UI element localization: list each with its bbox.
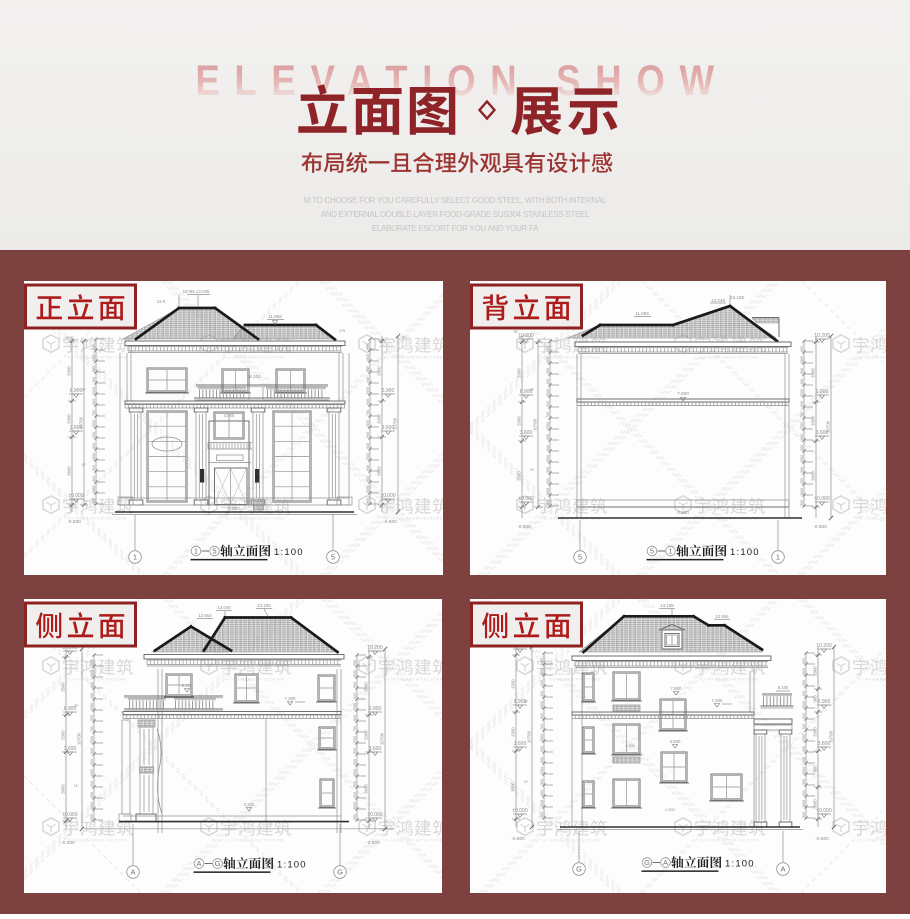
- svg-text:YU HONG ARCHITECTURE: YU HONG ARCHITECTURE: [541, 678, 601, 682]
- svg-text:12.5: 12.5: [157, 299, 166, 304]
- svg-text:G: G: [215, 859, 221, 868]
- svg-text:900: 900: [92, 498, 96, 504]
- svg-text:900: 900: [353, 781, 357, 787]
- svg-text:1500: 1500: [511, 679, 516, 689]
- svg-text:3300: 3300: [67, 414, 72, 424]
- svg-text:1500: 1500: [800, 455, 804, 463]
- svg-text:900: 900: [540, 680, 544, 686]
- svg-text:600: 600: [366, 476, 370, 482]
- svg-text:15?85 13.045: 15?85 13.045: [183, 289, 210, 294]
- svg-text:±0.000: ±0.000: [814, 496, 829, 502]
- svg-text:1:100: 1:100: [725, 859, 755, 870]
- svg-text:YU HONG ARCHITECTURE: YU HONG ARCHITECTURE: [383, 839, 443, 843]
- svg-text:700: 700: [802, 724, 806, 730]
- svg-text:900: 900: [90, 682, 94, 688]
- svg-text:-0.500: -0.500: [815, 836, 829, 842]
- svg-text:1500: 1500: [90, 769, 94, 777]
- svg-text:3300: 3300: [67, 366, 72, 376]
- svg-text:1800: 1800: [800, 488, 804, 496]
- svg-text:900: 900: [802, 680, 806, 686]
- svg-text:10700: 10700: [77, 732, 82, 745]
- svg-text:2550: 2550: [546, 422, 550, 430]
- svg-text:10.200: 10.200: [367, 645, 383, 651]
- svg-text:900: 900: [90, 781, 94, 787]
- svg-text:2550: 2550: [540, 734, 544, 742]
- svg-text:1:100: 1:100: [730, 547, 760, 558]
- svg-text:7.800: 7.800: [671, 686, 683, 691]
- svg-text:1F: 1F: [524, 780, 529, 784]
- svg-text:1:100: 1:100: [277, 860, 307, 871]
- svg-text:3300: 3300: [377, 414, 382, 424]
- svg-text:G: G: [337, 868, 343, 877]
- svg-text:1800: 1800: [813, 666, 818, 676]
- svg-text:600: 600: [802, 658, 806, 664]
- svg-text:3500: 3500: [61, 682, 66, 692]
- svg-text:3.600: 3.600: [520, 430, 533, 436]
- svg-text:900: 900: [90, 748, 94, 754]
- svg-text:-0.500: -0.500: [67, 519, 81, 525]
- svg-text:-0.500: -0.500: [383, 519, 397, 525]
- svg-text:3000: 3000: [92, 387, 96, 395]
- svg-text:900: 900: [353, 814, 357, 820]
- svg-text:RF: RF: [65, 336, 71, 340]
- svg-text:600: 600: [90, 759, 94, 765]
- svg-text:600: 600: [802, 713, 806, 719]
- svg-text:7.200: 7.200: [285, 696, 297, 701]
- svg-text:2F: 2F: [524, 700, 529, 704]
- svg-text:900: 900: [546, 434, 550, 440]
- svg-text:700: 700: [540, 724, 544, 730]
- svg-text:600: 600: [353, 660, 357, 666]
- svg-text:900: 900: [802, 746, 806, 752]
- svg-text:7.800: 7.800: [677, 391, 689, 396]
- svg-text:600: 600: [366, 443, 370, 449]
- svg-text:13.185: 13.185: [660, 603, 674, 608]
- svg-text:600: 600: [353, 715, 357, 721]
- svg-text:AND EXTERNAL DOUBLE-LAYER FOOD: AND EXTERNAL DOUBLE-LAYER FOOD-GRADE SUS…: [321, 210, 590, 219]
- svg-text:11.959: 11.959: [268, 314, 282, 319]
- svg-text:900: 900: [546, 467, 550, 473]
- svg-text:1800: 1800: [546, 356, 550, 364]
- svg-text:400: 400: [366, 377, 370, 383]
- svg-text:400: 400: [546, 379, 550, 385]
- svg-text:1:100: 1:100: [274, 547, 304, 558]
- svg-text:0.300: 0.300: [665, 808, 675, 812]
- svg-text:±0.000: ±0.000: [512, 808, 527, 814]
- svg-text:A: A: [130, 868, 135, 877]
- svg-text:900: 900: [353, 748, 357, 754]
- svg-text:2F: 2F: [82, 388, 87, 392]
- svg-text:600: 600: [800, 478, 804, 484]
- svg-text:±0.000: ±0.000: [62, 812, 77, 818]
- svg-text:900: 900: [92, 432, 96, 438]
- svg-text:900: 900: [366, 465, 370, 471]
- svg-text:600: 600: [540, 713, 544, 719]
- svg-text:600: 600: [800, 346, 804, 352]
- svg-text:3000: 3000: [540, 701, 544, 709]
- svg-text:6.900: 6.900: [382, 388, 395, 394]
- svg-text:YU HONG ARCHITECTURE: YU HONG ARCHITECTURE: [225, 839, 285, 843]
- svg-text:400: 400: [540, 691, 544, 697]
- svg-text:1500: 1500: [802, 767, 806, 775]
- svg-text:ELABORATE ESCORT FOR YOU AND Y: ELABORATE ESCORT FOR YOU AND YOUR FA: [372, 224, 539, 233]
- svg-text:3000: 3000: [90, 703, 94, 711]
- svg-text:YU HONG ARCHITECTURE: YU HONG ARCHITECTURE: [699, 356, 759, 360]
- svg-text:YU HONG ARCHITECTURE: YU HONG ARCHITECTURE: [67, 839, 127, 843]
- svg-text:5: 5: [578, 553, 582, 562]
- svg-text:6.900: 6.900: [70, 388, 83, 394]
- svg-text:4.300: 4.300: [625, 744, 635, 748]
- svg-text:600: 600: [90, 715, 94, 721]
- svg-text:1800: 1800: [540, 668, 544, 676]
- svg-text:600: 600: [353, 759, 357, 765]
- svg-text:±0.000: ±0.000: [518, 496, 533, 502]
- svg-text:600: 600: [546, 478, 550, 484]
- svg-text:700: 700: [546, 412, 550, 418]
- svg-text:900: 900: [540, 779, 544, 785]
- svg-text:2550: 2550: [353, 736, 357, 744]
- svg-text:-0.500: -0.500: [61, 840, 75, 846]
- svg-text:600: 600: [546, 346, 550, 352]
- svg-text:10700: 10700: [533, 418, 538, 431]
- svg-text:900: 900: [366, 432, 370, 438]
- svg-text:700: 700: [353, 726, 357, 732]
- svg-text:2550: 2550: [90, 736, 94, 744]
- svg-text:900: 900: [546, 368, 550, 374]
- svg-text:900: 900: [802, 812, 806, 818]
- svg-text:900: 900: [800, 434, 804, 440]
- svg-text:RF: RF: [513, 330, 519, 334]
- svg-text:3300: 3300: [811, 368, 816, 378]
- svg-text:600: 600: [92, 399, 96, 405]
- svg-text:700: 700: [800, 412, 804, 418]
- svg-text:900: 900: [366, 498, 370, 504]
- svg-text:900: 900: [353, 682, 357, 688]
- svg-text:13.185: 13.185: [730, 295, 744, 300]
- svg-text:900: 900: [366, 366, 370, 372]
- svg-text:3.600: 3.600: [70, 425, 83, 431]
- svg-text:-0.500: -0.500: [813, 524, 827, 530]
- svg-text:900: 900: [813, 765, 818, 773]
- svg-text:600: 600: [802, 790, 806, 796]
- svg-text:3300: 3300: [511, 727, 516, 737]
- svg-text:600: 600: [540, 790, 544, 796]
- svg-text:3.600: 3.600: [382, 425, 395, 431]
- svg-text:600: 600: [353, 792, 357, 798]
- svg-text:2550: 2550: [366, 420, 370, 428]
- svg-text:4.500: 4.500: [224, 413, 235, 418]
- svg-text:YU HONG ARCHITECTURE: YU HONG ARCHITECTURE: [383, 356, 443, 360]
- svg-text:6.900: 6.900: [369, 706, 382, 712]
- svg-text:600: 600: [800, 401, 804, 407]
- svg-text:600: 600: [92, 443, 96, 449]
- svg-text:3.600: 3.600: [816, 430, 829, 436]
- svg-text:900: 900: [92, 465, 96, 471]
- svg-text:900: 900: [800, 500, 804, 506]
- svg-text:0.500: 0.500: [677, 510, 689, 515]
- svg-text:1800: 1800: [802, 800, 806, 808]
- svg-text:1: 1: [776, 553, 780, 562]
- svg-text:1800: 1800: [802, 668, 806, 676]
- svg-text:600: 600: [546, 401, 550, 407]
- svg-text:700: 700: [92, 410, 96, 416]
- svg-text:700: 700: [366, 410, 370, 416]
- svg-text:1800: 1800: [90, 670, 94, 678]
- svg-text:10700: 10700: [380, 732, 385, 745]
- svg-text:1800: 1800: [366, 486, 370, 494]
- svg-text:3.600: 3.600: [369, 746, 382, 752]
- svg-text:3600: 3600: [511, 782, 516, 792]
- svg-text:3500: 3500: [364, 682, 369, 692]
- svg-text:1F: 1F: [74, 784, 79, 788]
- svg-text:1: 1: [194, 547, 198, 556]
- svg-text:900: 900: [800, 368, 804, 374]
- svg-text:400: 400: [800, 379, 804, 385]
- svg-text:3300: 3300: [813, 727, 818, 737]
- svg-text:3300: 3300: [61, 730, 66, 740]
- svg-text:2550: 2550: [800, 422, 804, 430]
- svg-text:3300: 3300: [377, 366, 382, 376]
- svg-text:A: A: [196, 859, 201, 868]
- svg-text:1: 1: [668, 547, 672, 556]
- svg-text:1?5: 1?5: [339, 329, 345, 333]
- svg-text:6.900: 6.900: [816, 389, 829, 395]
- svg-text:1800: 1800: [353, 670, 357, 678]
- svg-text:600: 600: [366, 344, 370, 350]
- svg-text:600: 600: [802, 757, 806, 763]
- svg-text:1800: 1800: [92, 486, 96, 494]
- svg-text:YU HONG ARCHITECTURE: YU HONG ARCHITECTURE: [67, 356, 127, 360]
- svg-text:600: 600: [90, 792, 94, 798]
- svg-text:5: 5: [212, 547, 216, 556]
- svg-text:600: 600: [540, 658, 544, 664]
- svg-text:13.045: 13.045: [217, 605, 231, 610]
- svg-text:G: G: [576, 865, 582, 874]
- svg-text:400: 400: [802, 691, 806, 697]
- svg-text:600: 600: [366, 399, 370, 405]
- svg-text:6.900: 6.900: [818, 699, 831, 705]
- svg-text:1500: 1500: [92, 453, 96, 461]
- svg-text:3000: 3000: [366, 387, 370, 395]
- svg-text:±0.000: ±0.000: [816, 808, 831, 814]
- svg-text:400: 400: [353, 693, 357, 699]
- svg-text:1F: 1F: [82, 463, 87, 467]
- svg-text:600: 600: [546, 445, 550, 451]
- svg-text:1800: 1800: [92, 354, 96, 362]
- svg-text:-0.500: -0.500: [517, 524, 531, 530]
- svg-text:3600: 3600: [67, 466, 72, 476]
- svg-text:3300: 3300: [364, 730, 369, 740]
- svg-text:YU HONG ARCHITECTURE: YU HONG ARCHITECTURE: [541, 839, 601, 843]
- svg-text:1500: 1500: [353, 769, 357, 777]
- svg-text:900: 900: [540, 812, 544, 818]
- svg-text:1800: 1800: [800, 356, 804, 364]
- svg-text:13.185: 13.185: [257, 603, 271, 608]
- svg-text:3.600: 3.600: [818, 741, 831, 747]
- svg-text:600: 600: [540, 757, 544, 763]
- svg-text:3.600: 3.600: [514, 741, 527, 747]
- svg-text:3300: 3300: [517, 368, 522, 378]
- svg-text:A: A: [780, 865, 785, 874]
- svg-text:2F: 2F: [530, 388, 535, 392]
- svg-text:3300: 3300: [517, 416, 522, 426]
- svg-text:ELEVATION SHOW: ELEVATION SHOW: [195, 57, 728, 104]
- svg-text:8.100: 8.100: [182, 683, 194, 688]
- svg-text:3600: 3600: [811, 471, 816, 481]
- svg-text:G: G: [644, 858, 650, 867]
- svg-text:2F: 2F: [74, 704, 79, 708]
- svg-text:0.300: 0.300: [244, 802, 255, 807]
- svg-text:-0.500: -0.500: [366, 840, 380, 846]
- svg-text:8.100: 8.100: [249, 374, 261, 379]
- svg-text:7.200: 7.200: [712, 698, 724, 703]
- svg-text:400: 400: [92, 377, 96, 383]
- svg-text:3000: 3000: [353, 703, 357, 711]
- svg-text:4.500: 4.500: [670, 739, 682, 744]
- svg-text:900: 900: [802, 779, 806, 785]
- svg-text:600: 600: [800, 445, 804, 451]
- svg-text:1800: 1800: [540, 800, 544, 808]
- svg-text:1800: 1800: [90, 802, 94, 810]
- svg-text:-0.500: -0.500: [511, 836, 525, 842]
- svg-text:11.959: 11.959: [635, 311, 649, 316]
- svg-text:1800: 1800: [546, 488, 550, 496]
- svg-text:3000: 3000: [800, 389, 804, 397]
- svg-text:YU HONG ARCHITECTURE: YU HONG ARCHITECTURE: [383, 678, 443, 682]
- svg-text:3300: 3300: [811, 416, 816, 426]
- svg-text:1800: 1800: [366, 354, 370, 362]
- svg-text:10.200: 10.200: [814, 333, 830, 339]
- svg-text:2550: 2550: [92, 420, 96, 428]
- svg-text:YU HONG ARCHITECTURE: YU HONG ARCHITECTURE: [699, 839, 759, 843]
- svg-text:8.100: 8.100: [778, 685, 789, 690]
- svg-text:10700: 10700: [527, 730, 532, 743]
- svg-text:1800: 1800: [353, 802, 357, 810]
- svg-text:2550: 2550: [802, 734, 806, 742]
- svg-text:YU HONG ARCHITECTURE: YU HONG ARCHITECTURE: [67, 678, 127, 682]
- svg-text:RF: RF: [401, 336, 407, 340]
- svg-text:900: 900: [546, 500, 550, 506]
- svg-text:900: 900: [800, 467, 804, 473]
- svg-text:12.554: 12.554: [198, 613, 212, 618]
- svg-text:900: 900: [540, 746, 544, 752]
- svg-text:YU HONG ARCHITECTURE: YU HONG ARCHITECTURE: [225, 356, 285, 360]
- svg-text:3000: 3000: [546, 389, 550, 397]
- svg-text:1500: 1500: [546, 455, 550, 463]
- svg-text:0.500: 0.500: [228, 506, 240, 511]
- svg-text:3.600: 3.600: [64, 746, 77, 752]
- svg-text:900: 900: [92, 366, 96, 372]
- svg-text:5: 5: [331, 553, 335, 562]
- svg-text:12.554: 12.554: [715, 614, 729, 619]
- svg-text:1F: 1F: [530, 468, 535, 472]
- svg-text:600: 600: [92, 344, 96, 350]
- svg-text:400: 400: [90, 693, 94, 699]
- svg-text:±0.000: ±0.000: [367, 812, 382, 818]
- svg-text:700: 700: [90, 726, 94, 732]
- svg-text:600: 600: [90, 660, 94, 666]
- svg-text:YU HONG ARCHITECTURE: YU HONG ARCHITECTURE: [225, 517, 285, 521]
- svg-text:600: 600: [92, 476, 96, 482]
- svg-text:3600: 3600: [364, 784, 369, 794]
- svg-text:A: A: [663, 858, 668, 867]
- svg-text:3600: 3600: [61, 784, 66, 794]
- svg-text:10.200: 10.200: [816, 643, 832, 649]
- svg-text:YU HONG ARCHITECTURE: YU HONG ARCHITECTURE: [225, 678, 285, 682]
- svg-text:M TO CHOOSE FOR YOU CAREFULLY: M TO CHOOSE FOR YOU CAREFULLY SELECT GOO…: [304, 196, 607, 205]
- svg-text:5: 5: [650, 547, 654, 556]
- svg-text:1500: 1500: [366, 453, 370, 461]
- svg-text:1: 1: [133, 553, 137, 562]
- svg-text:±0.000: ±0.000: [68, 493, 83, 499]
- svg-text:±0.000: ±0.000: [380, 493, 395, 499]
- svg-text:900: 900: [90, 814, 94, 820]
- svg-text:10.200: 10.200: [518, 333, 534, 339]
- svg-text:3000: 3000: [802, 701, 806, 709]
- svg-text:3600: 3600: [517, 471, 522, 481]
- svg-text:13.045: 13.045: [711, 298, 725, 303]
- svg-text:1500: 1500: [540, 767, 544, 775]
